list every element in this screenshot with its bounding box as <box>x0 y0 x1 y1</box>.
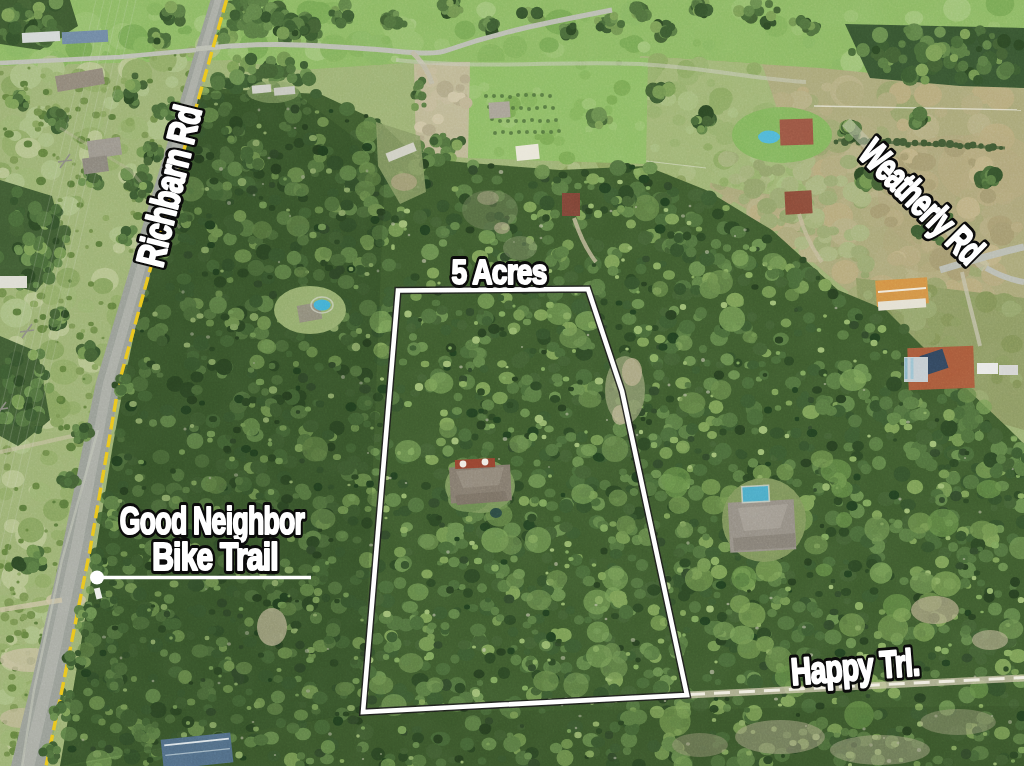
svg-text:Bike Trail: Bike Trail <box>152 536 278 578</box>
svg-text:5 Acres: 5 Acres <box>452 251 547 291</box>
